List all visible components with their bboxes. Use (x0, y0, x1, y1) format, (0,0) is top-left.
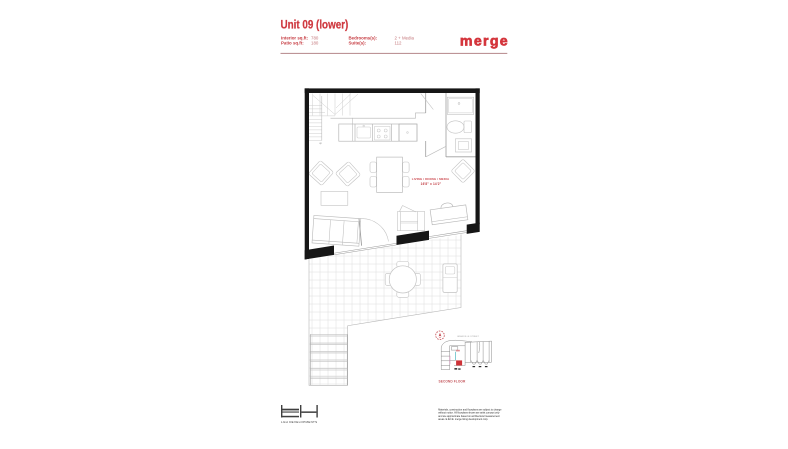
svg-text:up: up (319, 142, 322, 145)
svg-text:780: 780 (311, 35, 319, 40)
svg-text:Patio sq.ft:: Patio sq.ft: (281, 41, 304, 46)
svg-text:180: 180 (311, 41, 319, 46)
svg-text:Interior sq.ft:: Interior sq.ft: (281, 35, 309, 40)
svg-text:2 + Media: 2 + Media (395, 35, 415, 40)
svg-text:GRANVILLE STREET: GRANVILLE STREET (457, 335, 480, 338)
svg-text:Suite(s):: Suite(s): (349, 41, 367, 46)
svg-text:Unit 09 (lower): Unit 09 (lower) (281, 19, 349, 32)
svg-text:SECOND FLOOR: SECOND FLOOR (439, 379, 466, 383)
svg-text:LIVING / DINING / MEDIA: LIVING / DINING / MEDIA (412, 177, 450, 181)
svg-text:112: 112 (395, 41, 403, 46)
svg-text:areas. E.&O.E. merge living de: areas. E.&O.E. merge living development … (438, 418, 488, 421)
svg-text:Bedrooms(s):: Bedrooms(s): (349, 35, 378, 40)
svg-text:merge: merge (460, 34, 509, 50)
svg-text:LGH DEVELOPMENTS: LGH DEVELOPMENTS (281, 420, 317, 424)
svg-text:16'8" x 14'2": 16'8" x 14'2" (421, 182, 442, 186)
